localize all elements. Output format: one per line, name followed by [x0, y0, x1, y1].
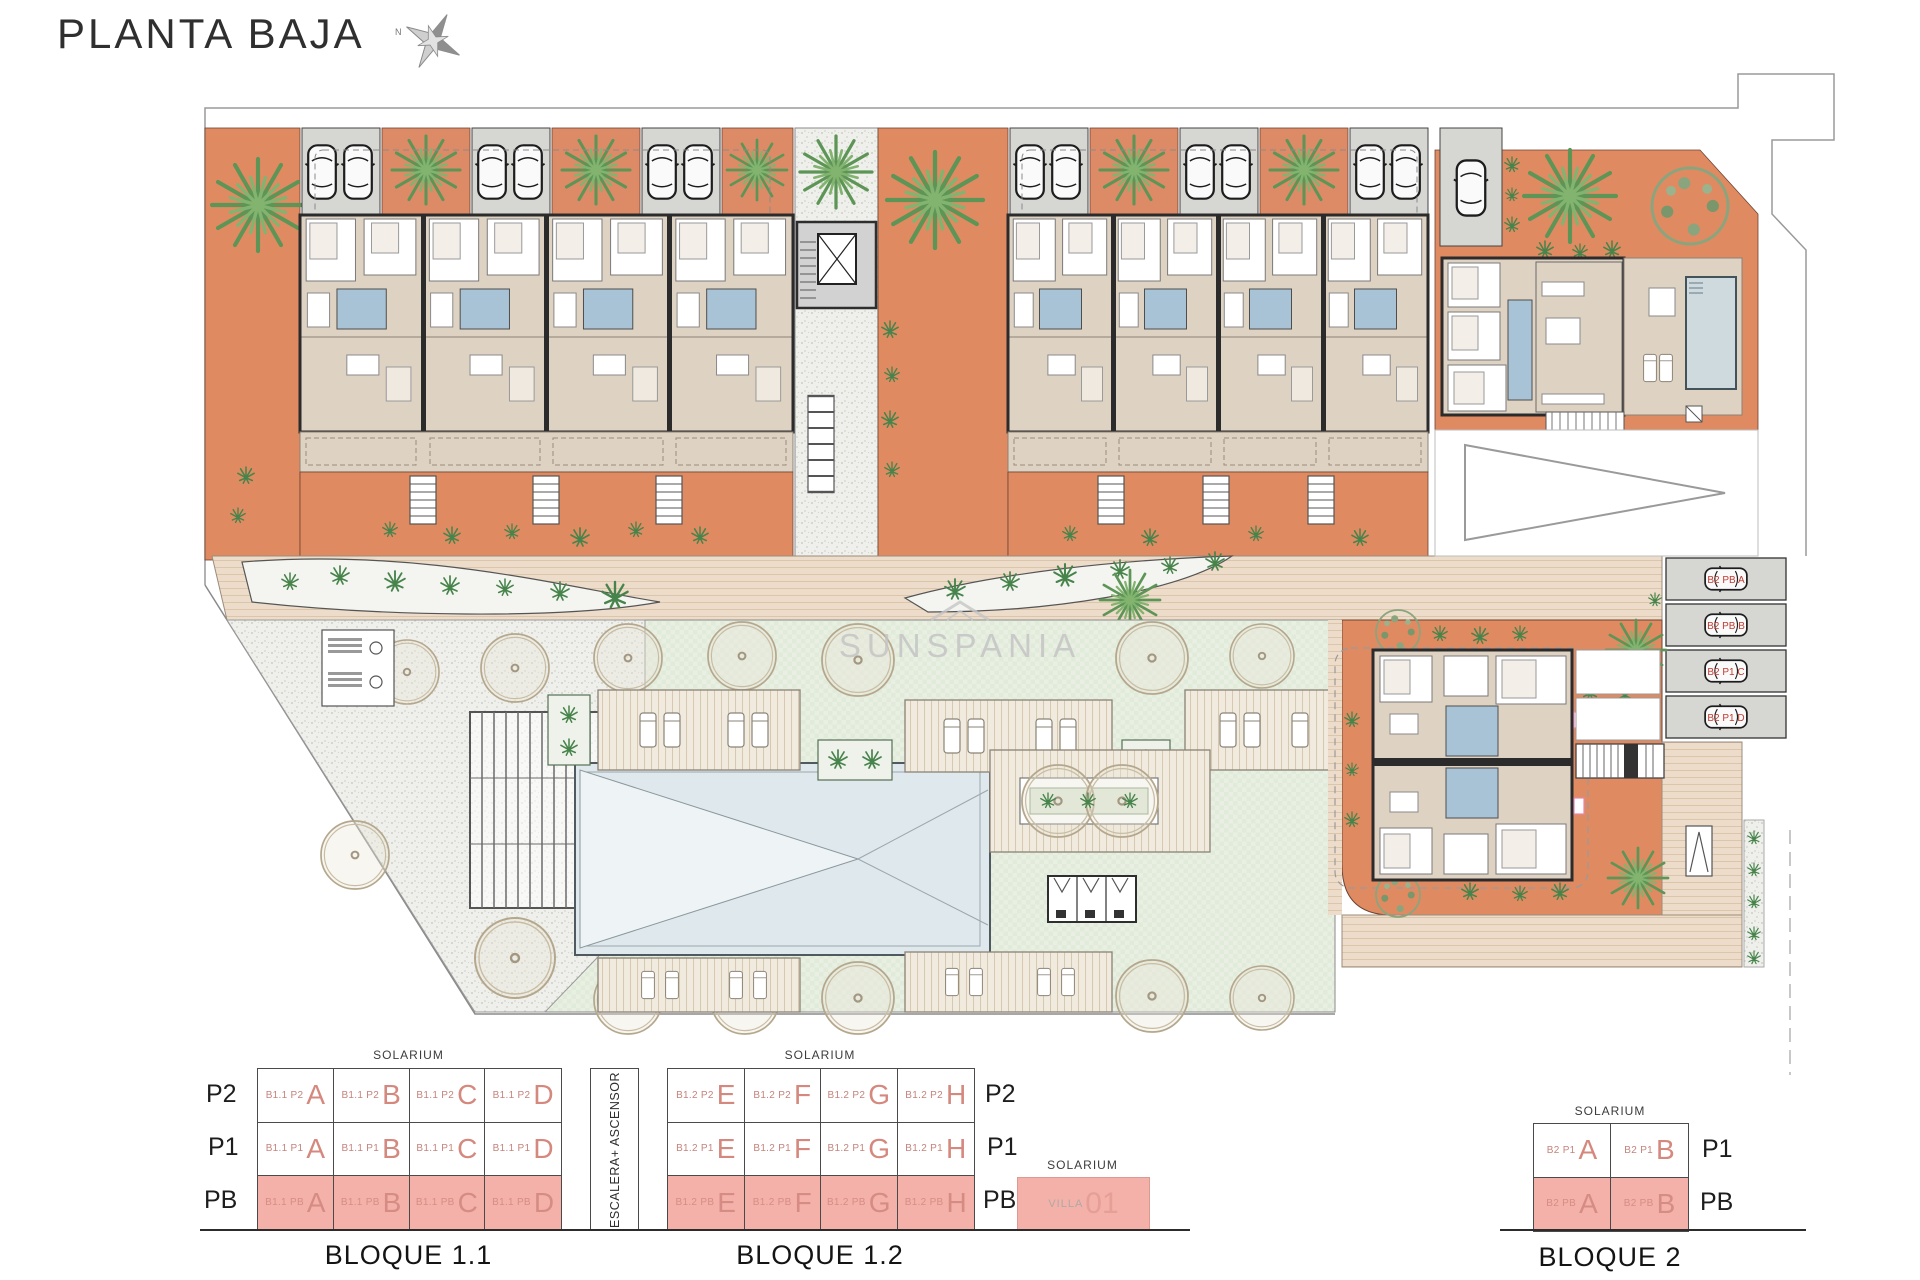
sun-deck [905, 952, 1112, 1012]
bloque-1-1-building [300, 215, 793, 432]
legend-cell: B1.1 PBD [485, 1176, 561, 1230]
floor-label-b2-pb: PB [1700, 1188, 1733, 1217]
legend-baseline-right [1500, 1229, 1806, 1231]
planta-baja-drawing: PLANTA BAJA N [0, 0, 1920, 1280]
legend-cell: B1.2 PBE [668, 1176, 745, 1230]
parking-label: B2 PB A [1707, 575, 1745, 586]
legend-cell: B1.1 P2B [334, 1069, 410, 1123]
parking-stalls: B2 PB A B2 PB B B2 P1 C B2 P1 D [1649, 558, 1786, 738]
floor-label-pb-right: PB [983, 1186, 1016, 1215]
legend-bloque-1-2-grid: B1.2 P2E B1.2 P2F B1.2 P2G B1.2 P2H B1.2… [667, 1068, 975, 1231]
legend-cell: B2 P1B [1611, 1124, 1688, 1178]
legend-cell: B1.2 P2E [668, 1069, 745, 1123]
gate [1686, 826, 1712, 876]
legend-villa-box: VILLA01 [1017, 1177, 1150, 1231]
legend-cell: B1.2 P1H [898, 1123, 975, 1177]
villa-terrace [1624, 258, 1742, 422]
legend-cell: B1.1 P1A [258, 1123, 334, 1177]
stair-elevator-core [795, 128, 878, 558]
legend-cell: B1.2 P2F [745, 1069, 822, 1123]
bloque-1-1-name: BLOQUE 1.1 [257, 1240, 560, 1271]
pool-garden-area [227, 620, 1335, 1034]
villa-entry-stairs [1546, 412, 1624, 430]
legend-cell: B1.1 P1C [410, 1123, 486, 1177]
utility-panel [322, 630, 394, 706]
legend-cell: B2 PBB [1611, 1178, 1688, 1232]
escalera-ascensor-box: ESCALERA+ ASCENSOR [590, 1068, 639, 1231]
villa-zone [1435, 128, 1758, 452]
legend-cell: B1.1 P1B [334, 1123, 410, 1177]
bloque-1-2-zone [878, 128, 1428, 560]
bloque-1-2-name: BLOQUE 1.2 [667, 1240, 973, 1271]
legend-cell: B1.2 PBG [821, 1176, 898, 1230]
legend-cell: B1.2 P1F [745, 1123, 822, 1177]
legend-cell: B2 PBA [1534, 1178, 1611, 1232]
bloque-2-building [1373, 650, 1584, 880]
sun-deck [598, 690, 800, 770]
solarium-label-b11: SOLARIUM [257, 1048, 560, 1062]
solarium-label-villa: SOLARIUM [1017, 1158, 1148, 1172]
legend-cell: B1.2 P1E [668, 1123, 745, 1177]
legend-cell: B1.2 P2H [898, 1069, 975, 1123]
legend-cell: B1.1 PBB [334, 1176, 410, 1230]
bloque-2-name: BLOQUE 2 [1533, 1242, 1687, 1273]
legend-cell: B1.2 PBH [898, 1176, 975, 1230]
legend-cell: B2 P1A [1534, 1124, 1611, 1178]
legend-bloque-2-grid: B2 P1A B2 P1B B2 PBA B2 PBB [1533, 1123, 1689, 1232]
driveway [1435, 430, 1758, 556]
villa-pool [1686, 277, 1736, 389]
floor-label-pb: PB [204, 1186, 237, 1215]
legend-baseline-left [200, 1229, 1190, 1231]
floor-label-p2: P2 [206, 1080, 237, 1109]
bloque-1-2-building [1008, 215, 1428, 432]
pool-side-deck [990, 750, 1210, 852]
floor-label-p1-right: P1 [987, 1133, 1018, 1162]
legend-cell: B1.1 P2A [258, 1069, 334, 1123]
floor-label-p2-right: P2 [985, 1080, 1016, 1109]
legend-cell: B1.2 P2G [821, 1069, 898, 1123]
floor-label-p1: P1 [208, 1133, 239, 1162]
legend-cell: B1.1 PBA [258, 1176, 334, 1230]
solarium-label-b12: SOLARIUM [667, 1048, 973, 1062]
pool [575, 763, 990, 955]
bloque-1-1-zone [205, 128, 793, 560]
planter-box [818, 740, 892, 780]
villa-building [1442, 258, 1624, 415]
legend-cell: B1.1 P2D [485, 1069, 561, 1123]
parking-label: B2 P1 D [1707, 713, 1744, 724]
legend-cell: B1.1 P1D [485, 1123, 561, 1177]
legend-cell: B1.1 PBC [410, 1176, 486, 1230]
legend-bloque-1-1-grid: B1.1 P2A B1.1 P2B B1.1 P2C B1.1 P2D B1.1… [257, 1068, 562, 1231]
pool-wc-block [1048, 876, 1136, 922]
parking-label: B2 PB B [1707, 621, 1745, 632]
parking-label: B2 P1 C [1707, 667, 1744, 678]
legend-cell: B1.1 P2C [410, 1069, 486, 1123]
legend-cell: B1.2 PBF [745, 1176, 822, 1230]
planter-box [548, 695, 590, 765]
solarium-label-b2: SOLARIUM [1533, 1104, 1687, 1118]
bloque-2-stairs [1576, 744, 1664, 778]
floor-label-b2-p1: P1 [1702, 1135, 1733, 1164]
legend-cell: B1.2 P1G [821, 1123, 898, 1177]
sun-deck [598, 958, 800, 1012]
